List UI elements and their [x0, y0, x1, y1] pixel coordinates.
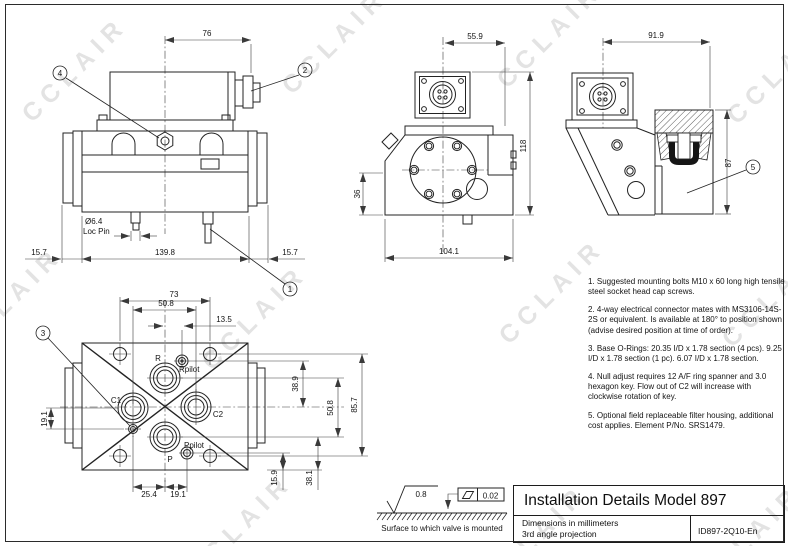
document-number: ID897-2Q10-En: [691, 516, 784, 541]
label-port-rpilot: Rpilot: [179, 365, 200, 374]
filter-housing: [655, 110, 713, 214]
dim-15-7-right: 15.7: [282, 248, 298, 257]
locating-pin: [131, 212, 140, 223]
surface-caption: Surface to which valve is mounted: [381, 524, 502, 533]
flatness-value: 0.02: [483, 492, 499, 501]
note-3: 3. Base O-Rings: 20.35 I/D x 1.78 sectio…: [588, 344, 785, 364]
flatness-tolerance-frame: 0.02: [458, 488, 504, 501]
electrical-connector: [415, 72, 470, 118]
notes-list: 1. Suggested mounting bolts M10 x 60 lon…: [588, 277, 785, 439]
dim-19-1-bottom: 19.1: [170, 490, 186, 499]
svg-text:3: 3: [41, 329, 46, 338]
label-port-ppilot: Ppilot: [184, 441, 205, 450]
roughness-value: 0.8: [415, 490, 427, 499]
side-view: 55.9: [353, 32, 534, 262]
note-2: 2. 4-way electrical connector mates with…: [588, 305, 785, 335]
dim-19-1-left: 19.1: [40, 411, 49, 427]
dim-85-7: 85.7: [350, 397, 359, 413]
dim-36: 36: [353, 189, 362, 198]
label-port-p: P: [167, 455, 172, 464]
mounting-pin: [203, 212, 213, 224]
dim-25-4: 25.4: [141, 490, 157, 499]
dim-50-8-top: 50.8: [158, 299, 174, 308]
drawing-title: Installation Details Model 897: [514, 486, 784, 516]
loc-pin-label: Loc Pin: [83, 227, 110, 236]
units-note: Dimensions in millimeters: [522, 518, 690, 529]
dim-118: 118: [519, 139, 528, 152]
drawing-sheet: CCLAIR CCLAIR CCLAIR CCLAIR CCLAIR CCLAI…: [0, 0, 788, 546]
title-block: Installation Details Model 897 Dimension…: [513, 485, 785, 543]
drawing-canvas: 76 Ø6.4 Loc Pin 15.7 139.8 15.7 4: [0, 0, 788, 546]
front-view: 76 Ø6.4 Loc Pin 15.7 139.8 15.7 4: [25, 29, 312, 296]
dim-15-9: 15.9: [270, 470, 279, 486]
dim-50-8-right: 50.8: [326, 400, 335, 416]
svg-text:1: 1: [288, 285, 293, 294]
electrical-connector-2: [572, 73, 633, 120]
label-port-c1: C1: [111, 396, 122, 405]
note-4: 4. Null adjust requires 12 A/F ring span…: [588, 372, 785, 402]
loc-pin-dia: Ø6.4: [85, 217, 103, 226]
units-cell: Dimensions in millimeters 3rd angle proj…: [514, 516, 691, 541]
label-port-r: R: [155, 354, 161, 363]
projection-note: 3rd angle projection: [522, 529, 690, 540]
dim-55-9: 55.9: [467, 32, 483, 41]
port-rpilot: [174, 330, 190, 369]
balloon-1: 1: [210, 229, 297, 296]
note-1: 1. Suggested mounting bolts M10 x 60 lon…: [588, 277, 785, 297]
dim-38-1: 38.1: [305, 470, 314, 486]
balloon-4: 4: [53, 66, 159, 138]
svg-text:2: 2: [303, 66, 308, 75]
section-view: 91.9: [566, 31, 760, 215]
port-view: R Rpilot C1 C2 P Ppilot 73 50.8 13.5 19.…: [36, 290, 368, 499]
dim-91-9: 91.9: [648, 31, 664, 40]
roughness-icon: [387, 486, 438, 513]
note-5: 5. Optional field replaceable filter hou…: [588, 411, 785, 431]
dim-13-5: 13.5: [216, 315, 232, 324]
dim-87: 87: [724, 158, 733, 167]
dim-139-8: 139.8: [155, 248, 176, 257]
port-r: [147, 363, 183, 393]
flatness-icon: [463, 492, 474, 499]
svg-text:4: 4: [58, 69, 63, 78]
svg-text:5: 5: [751, 163, 756, 172]
mounting-surface-symbol: 0.8 0.02 Surface to which valve is mount…: [377, 486, 507, 533]
label-port-c2: C2: [213, 410, 224, 419]
dim-15-7-left: 15.7: [31, 248, 47, 257]
balloon-3: 3: [36, 326, 130, 426]
dim-104-1: 104.1: [439, 247, 460, 256]
dim-76: 76: [203, 29, 212, 38]
port-p: [147, 422, 183, 452]
dim-73: 73: [170, 290, 179, 299]
dim-38-9: 38.9: [291, 376, 300, 392]
